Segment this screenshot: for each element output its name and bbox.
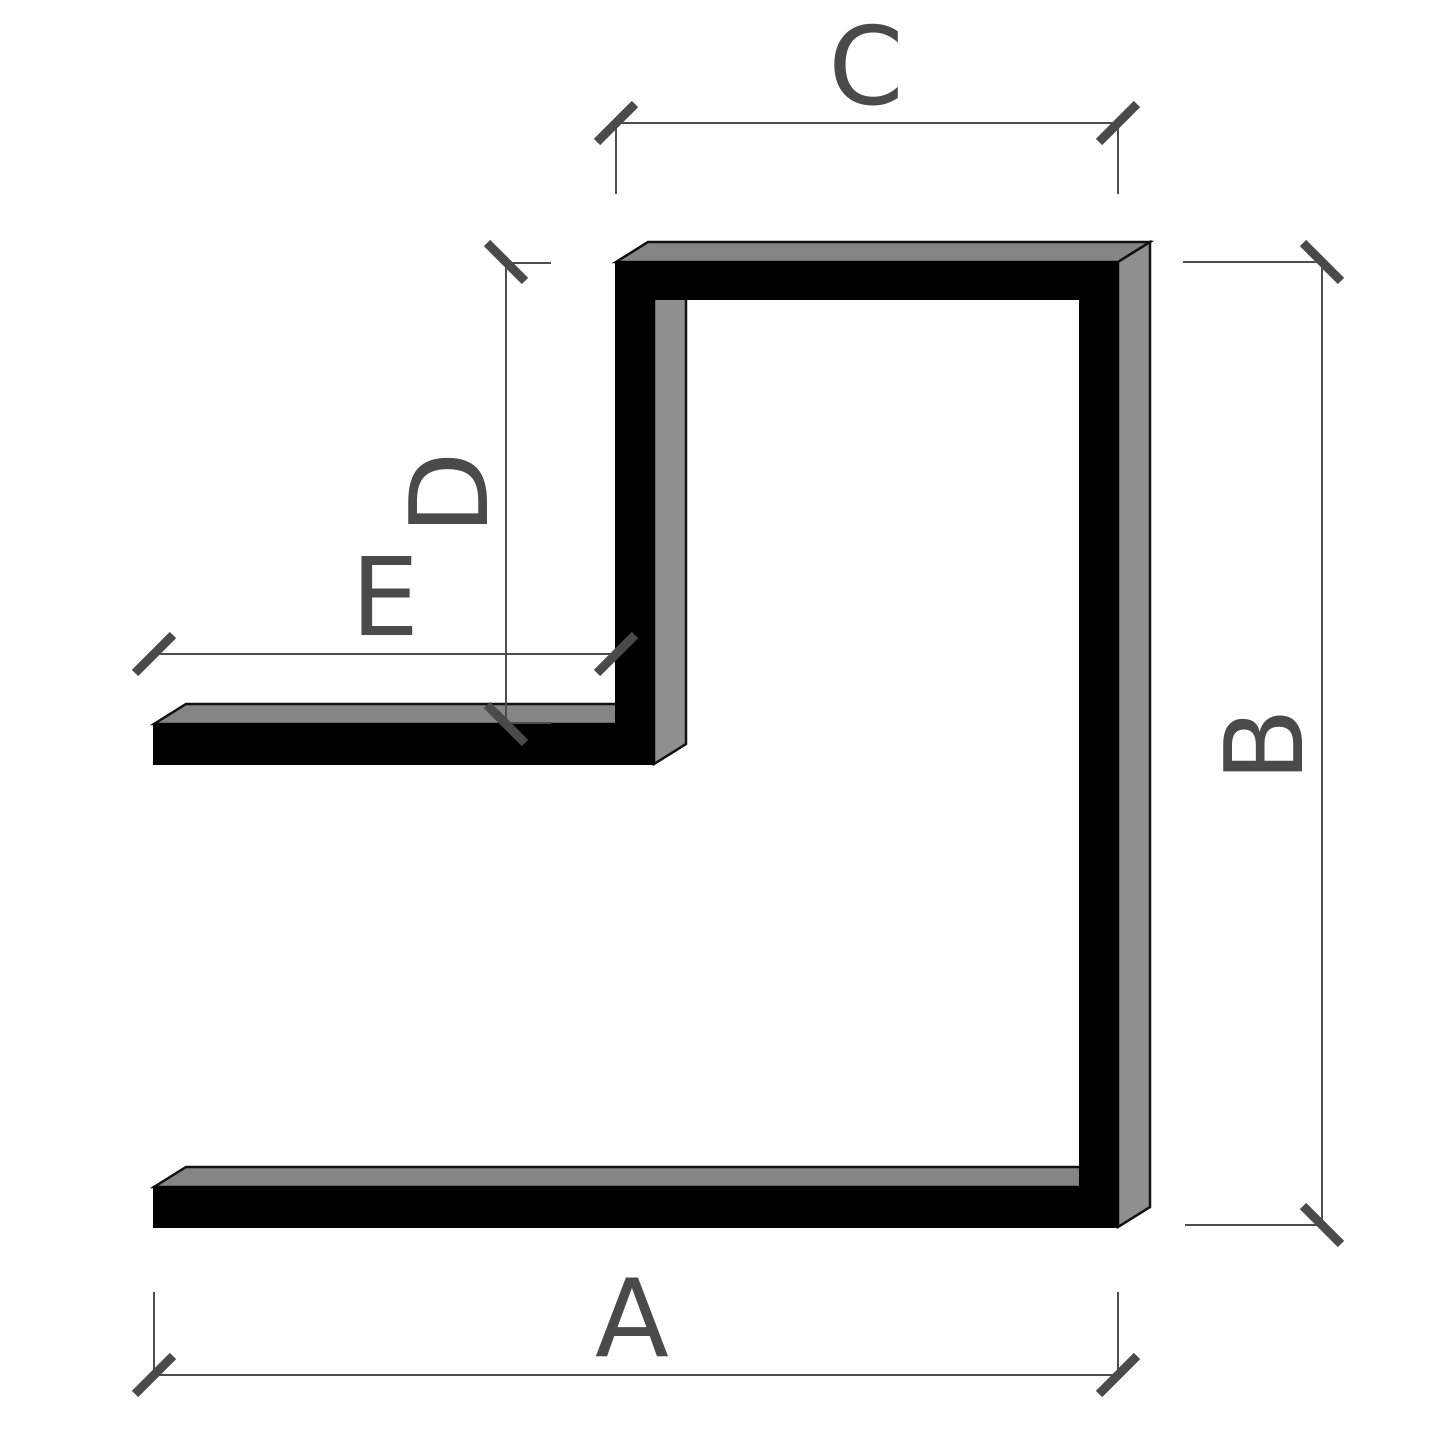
top-face-middle-flange xyxy=(154,704,648,724)
top-face-bottom-flange xyxy=(154,1167,1112,1187)
dim-a-label: A xyxy=(595,1257,669,1382)
drawing-canvas: C B A D xyxy=(0,0,1445,1445)
side-face-left-wall xyxy=(654,279,686,764)
dim-b-label: B xyxy=(1203,708,1328,782)
dim-e-label: E xyxy=(351,536,419,661)
side-face-right-spine xyxy=(1118,242,1150,1227)
profile-drawing-svg: C B A D xyxy=(0,0,1445,1445)
dim-c-label: C xyxy=(828,5,903,130)
dim-d-label: D xyxy=(388,451,513,534)
top-face-top-bar xyxy=(616,242,1150,262)
